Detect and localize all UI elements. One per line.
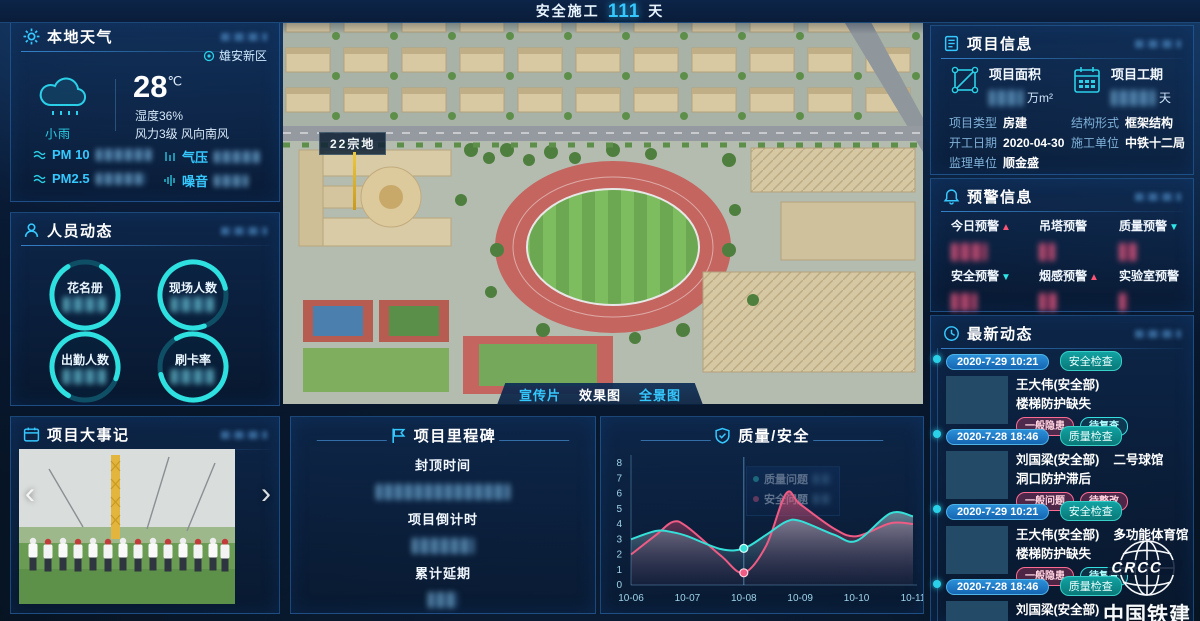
inspector-name: 王大伟(安全部) <box>1016 528 1099 542</box>
events-panel-title: 项目大事记 <box>47 424 130 445</box>
inspector-name: 刘国梁(安全部) <box>1016 453 1099 467</box>
safety-warning-value-redacted <box>951 293 977 311</box>
calendar-icon <box>1071 64 1103 96</box>
smoke-warning-value-redacted <box>1039 293 1057 311</box>
inspection-photo[interactable] <box>946 526 1008 574</box>
crane-warning-label: 吊塔预警 <box>1039 219 1087 233</box>
pm10-metric: PM 10 <box>33 147 152 162</box>
location-label: 雄安新区 <box>219 47 267 64</box>
divider <box>115 79 116 131</box>
entry-date-badge: 2020-7-28 18:46 <box>946 429 1049 445</box>
wind-label: 风力3级 风向南风 <box>135 125 229 142</box>
carousel-next-button[interactable]: › <box>261 479 271 509</box>
structure-label: 结构形式 <box>1071 116 1119 130</box>
issue-description: 楼梯防护缺失 <box>1016 547 1091 561</box>
pm10-value-redacted <box>96 149 152 161</box>
noise-icon <box>163 174 176 187</box>
svg-text:0: 0 <box>616 580 622 591</box>
today-warning-value-redacted <box>951 243 987 261</box>
ring-label: 花名册 <box>47 279 123 296</box>
group-photo <box>19 449 235 604</box>
milestone-panel-title: 项目里程碑 <box>414 425 497 446</box>
alarm-bell-icon <box>943 188 960 205</box>
countdown-label: 项目倒计时 <box>291 509 595 528</box>
header-deco <box>1135 330 1181 338</box>
roster-ring: 花名册 <box>47 257 123 333</box>
area-unit: 万m² <box>1027 91 1053 105</box>
timeline-dot <box>933 580 941 588</box>
calendar-icon <box>23 426 40 443</box>
trend-down-icon: ▼ <box>1001 272 1011 283</box>
project-info-title: 项目信息 <box>967 33 1033 54</box>
topping-time-value-redacted <box>376 484 510 500</box>
onsite-value-redacted <box>171 297 215 312</box>
entry-type-badge: 安全检查 <box>1060 501 1122 521</box>
svg-text:10-11: 10-11 <box>901 593 923 604</box>
trend-up-icon: ▲ <box>1001 222 1011 233</box>
noise-value-redacted <box>214 175 248 187</box>
header-deco <box>1135 193 1181 201</box>
countdown-value-redacted <box>412 538 474 554</box>
project-duration-stat: 项目工期 天 <box>1071 64 1171 107</box>
quality-safety-chart[interactable]: 01234567810-0610-0710-0810-0910-1010-11 <box>601 449 923 611</box>
svg-text:7: 7 <box>616 473 622 484</box>
project-type-label: 项目类型 <box>949 116 997 130</box>
header-deco <box>221 33 267 41</box>
attendance-value-redacted <box>63 369 107 384</box>
lab-warning-label: 实验室预警 <box>1119 269 1179 283</box>
render-view-button[interactable]: 效果图 <box>579 385 621 404</box>
gear-icon <box>23 28 40 45</box>
dashboard: 22宗地 安全施工 111 天 宣传片 效果图 全景图 本地天气 雄安新区 小雨… <box>0 0 1200 621</box>
pressure-value-redacted <box>214 151 260 163</box>
update-entry[interactable]: 2020-7-28 18:46 质量检查 刘国梁(安全部)二号球馆 洞口防护滞后… <box>946 426 1196 511</box>
svg-text:2: 2 <box>616 550 622 561</box>
crcc-brand-text: 中国铁建 <box>1094 599 1200 621</box>
delay-label: 累计延期 <box>291 563 595 582</box>
quality-warning-label: 质量预警 <box>1119 219 1167 233</box>
location-badge[interactable]: 雄安新区 <box>203 47 267 64</box>
air-quality-icon <box>33 148 46 161</box>
crcc-mark: CRCC <box>1110 560 1165 577</box>
warnings-title: 预警信息 <box>967 186 1033 207</box>
crane-warning-value-redacted <box>1039 243 1055 261</box>
duration-value-redacted <box>1111 90 1155 106</box>
timeline-dot <box>933 355 941 363</box>
timeline-dot <box>933 505 941 513</box>
person-icon <box>23 222 40 239</box>
svg-text:10-08: 10-08 <box>731 593 757 604</box>
area-label: 项目面积 <box>989 64 1053 83</box>
swipe-rate-ring: 刷卡率 <box>155 329 231 405</box>
delay-value-redacted <box>428 592 458 608</box>
attendance-ring: 出勤人数 <box>47 329 123 405</box>
safe-days-count: 111 <box>608 2 641 21</box>
header-deco <box>309 431 387 441</box>
project-type-value: 房建 <box>1003 116 1027 130</box>
temperature-value: 28℃ <box>133 69 182 105</box>
air-quality-icon <box>33 172 46 185</box>
personnel-panel: 人员动态 花名册 现场人数 出勤人数 刷卡率 <box>10 212 280 406</box>
duration-unit: 天 <box>1159 91 1171 105</box>
safety-warning-label: 安全预警 <box>951 269 999 283</box>
entry-type-badge: 安全检查 <box>1060 351 1122 371</box>
event-photo-carousel[interactable] <box>19 449 235 604</box>
roster-value-redacted <box>63 297 107 312</box>
svg-text:8: 8 <box>616 458 622 469</box>
warnings-panel: 预警信息 今日预警▲ 吊塔预警 质量预警▼ 安全预警▼ 烟感预警▲ 实验室预警 <box>930 178 1194 312</box>
rain-cloud-icon <box>37 75 95 121</box>
project-info-panel: 项目信息 项目面积 万m² 项目工期 天 项目类型房建 结构形式框架结构 开工日… <box>930 25 1194 175</box>
inspection-photo[interactable] <box>946 376 1008 424</box>
svg-text:5: 5 <box>616 504 622 515</box>
land-parcel-pin <box>353 152 356 210</box>
svg-text:10-09: 10-09 <box>787 593 813 604</box>
inspection-photo[interactable] <box>946 601 1008 621</box>
pm25-metric: PM2.5 <box>33 171 146 186</box>
weather-panel: 本地天气 雄安新区 小雨 28℃ 湿度36% 风力3级 风向南风 PM 10 气… <box>10 18 280 202</box>
header-deco <box>1135 40 1181 48</box>
header-deco <box>633 431 711 441</box>
clock-icon <box>943 325 960 342</box>
ring-label: 刷卡率 <box>155 351 231 368</box>
svg-text:10-10: 10-10 <box>844 593 870 604</box>
trend-down-icon: ▼ <box>1169 222 1179 233</box>
svg-text:1: 1 <box>616 565 622 576</box>
today-warning-label: 今日预警 <box>951 219 999 233</box>
humidity-label: 湿度36% <box>135 107 183 124</box>
location-pin-icon <box>203 50 215 62</box>
timeline-dot <box>933 430 941 438</box>
svg-text:10-07: 10-07 <box>675 593 701 604</box>
svg-text:3: 3 <box>616 534 622 545</box>
area-value-redacted <box>989 90 1023 106</box>
topping-time-label: 封顶时间 <box>291 455 595 474</box>
campus-3d-render: 22宗地 <box>283 0 923 404</box>
header-deco <box>499 431 577 441</box>
project-area-stat: 项目面积 万m² <box>949 64 1053 107</box>
inspection-photo[interactable] <box>946 451 1008 499</box>
safe-construction-label: 安全施工 <box>536 1 600 21</box>
entry-type-badge: 质量检查 <box>1060 426 1122 446</box>
crcc-logo: CRCC 中国铁建 <box>1094 538 1200 621</box>
pressure-icon <box>163 150 176 163</box>
carousel-prev-button[interactable]: ‹ <box>25 479 35 509</box>
crcc-globe-icon: CRCC <box>1104 538 1190 598</box>
milestone-panel: 项目里程碑 封顶时间 项目倒计时 累计延期 <box>290 416 596 614</box>
header-deco <box>813 431 891 441</box>
swipe-rate-value-redacted <box>171 369 215 384</box>
quality-safety-panel: 质量/安全 01234567810-0610-0710-0810-0910-10… <box>600 416 924 614</box>
structure-value: 框架结构 <box>1125 116 1173 130</box>
header-deco <box>221 227 267 235</box>
start-date-label: 开工日期 <box>949 136 997 150</box>
quality-safety-title: 质量/安全 <box>738 425 810 446</box>
onsite-ring: 现场人数 <box>155 257 231 333</box>
contractor-label: 施工单位 <box>1071 136 1119 150</box>
smoke-warning-label: 烟感预警 <box>1039 269 1087 283</box>
svg-text:10-06: 10-06 <box>618 593 644 604</box>
inspector-name: 王大伟(安全部) <box>1016 378 1099 392</box>
pressure-metric: 气压 <box>163 147 260 166</box>
inspector-name: 刘国梁(安全部) <box>1016 603 1099 617</box>
lab-warning-value-redacted <box>1119 293 1128 311</box>
entry-date-badge: 2020-7-29 10:21 <box>946 504 1049 520</box>
update-entry[interactable]: 2020-7-29 10:21 安全检查 王大伟(安全部) 楼梯防护缺失 一般隐… <box>946 351 1196 436</box>
entry-location: 二号球馆 <box>1113 453 1163 467</box>
svg-text:4: 4 <box>616 519 622 530</box>
milestone-photo-panel: 项目大事记 <box>10 416 280 614</box>
ring-label: 出勤人数 <box>47 351 123 368</box>
noise-metric: 噪音 <box>163 171 248 190</box>
promo-video-button[interactable]: 宣传片 <box>519 385 561 404</box>
weather-condition-label: 小雨 <box>45 125 71 142</box>
weather-panel-title: 本地天气 <box>47 26 113 47</box>
aerial-render-image <box>283 0 923 404</box>
pm25-value-redacted <box>96 173 146 185</box>
contractor-value: 中铁十二局 <box>1125 136 1185 150</box>
quality-warning-value-redacted <box>1119 243 1137 261</box>
updates-title: 最新动态 <box>967 323 1033 344</box>
shield-check-icon <box>714 427 731 444</box>
svg-text:6: 6 <box>616 489 622 500</box>
ring-label: 现场人数 <box>155 279 231 296</box>
issue-description: 洞口防护滞后 <box>1016 472 1091 486</box>
personnel-panel-title: 人员动态 <box>47 220 113 241</box>
entry-date-badge: 2020-7-29 10:21 <box>946 354 1049 370</box>
start-date-value: 2020-04-30 <box>1003 136 1064 150</box>
document-icon <box>943 35 960 52</box>
flag-icon <box>390 427 407 444</box>
trend-up-icon: ▲ <box>1089 272 1099 283</box>
page-header: 安全施工 111 天 <box>0 0 1200 23</box>
issue-description: 楼梯防护缺失 <box>1016 397 1091 411</box>
panorama-button[interactable]: 全景图 <box>639 385 681 404</box>
entry-date-badge: 2020-7-28 18:46 <box>946 579 1049 595</box>
temperature-unit: ℃ <box>167 74 182 89</box>
duration-label: 项目工期 <box>1111 64 1171 83</box>
header-deco <box>221 431 267 439</box>
days-unit-label: 天 <box>648 1 664 21</box>
area-icon <box>949 64 981 96</box>
supervisor-value: 顺金盛 <box>1003 156 1039 170</box>
view-switcher: 宣传片 效果图 全景图 <box>497 383 703 405</box>
supervisor-label: 监理单位 <box>949 156 997 170</box>
